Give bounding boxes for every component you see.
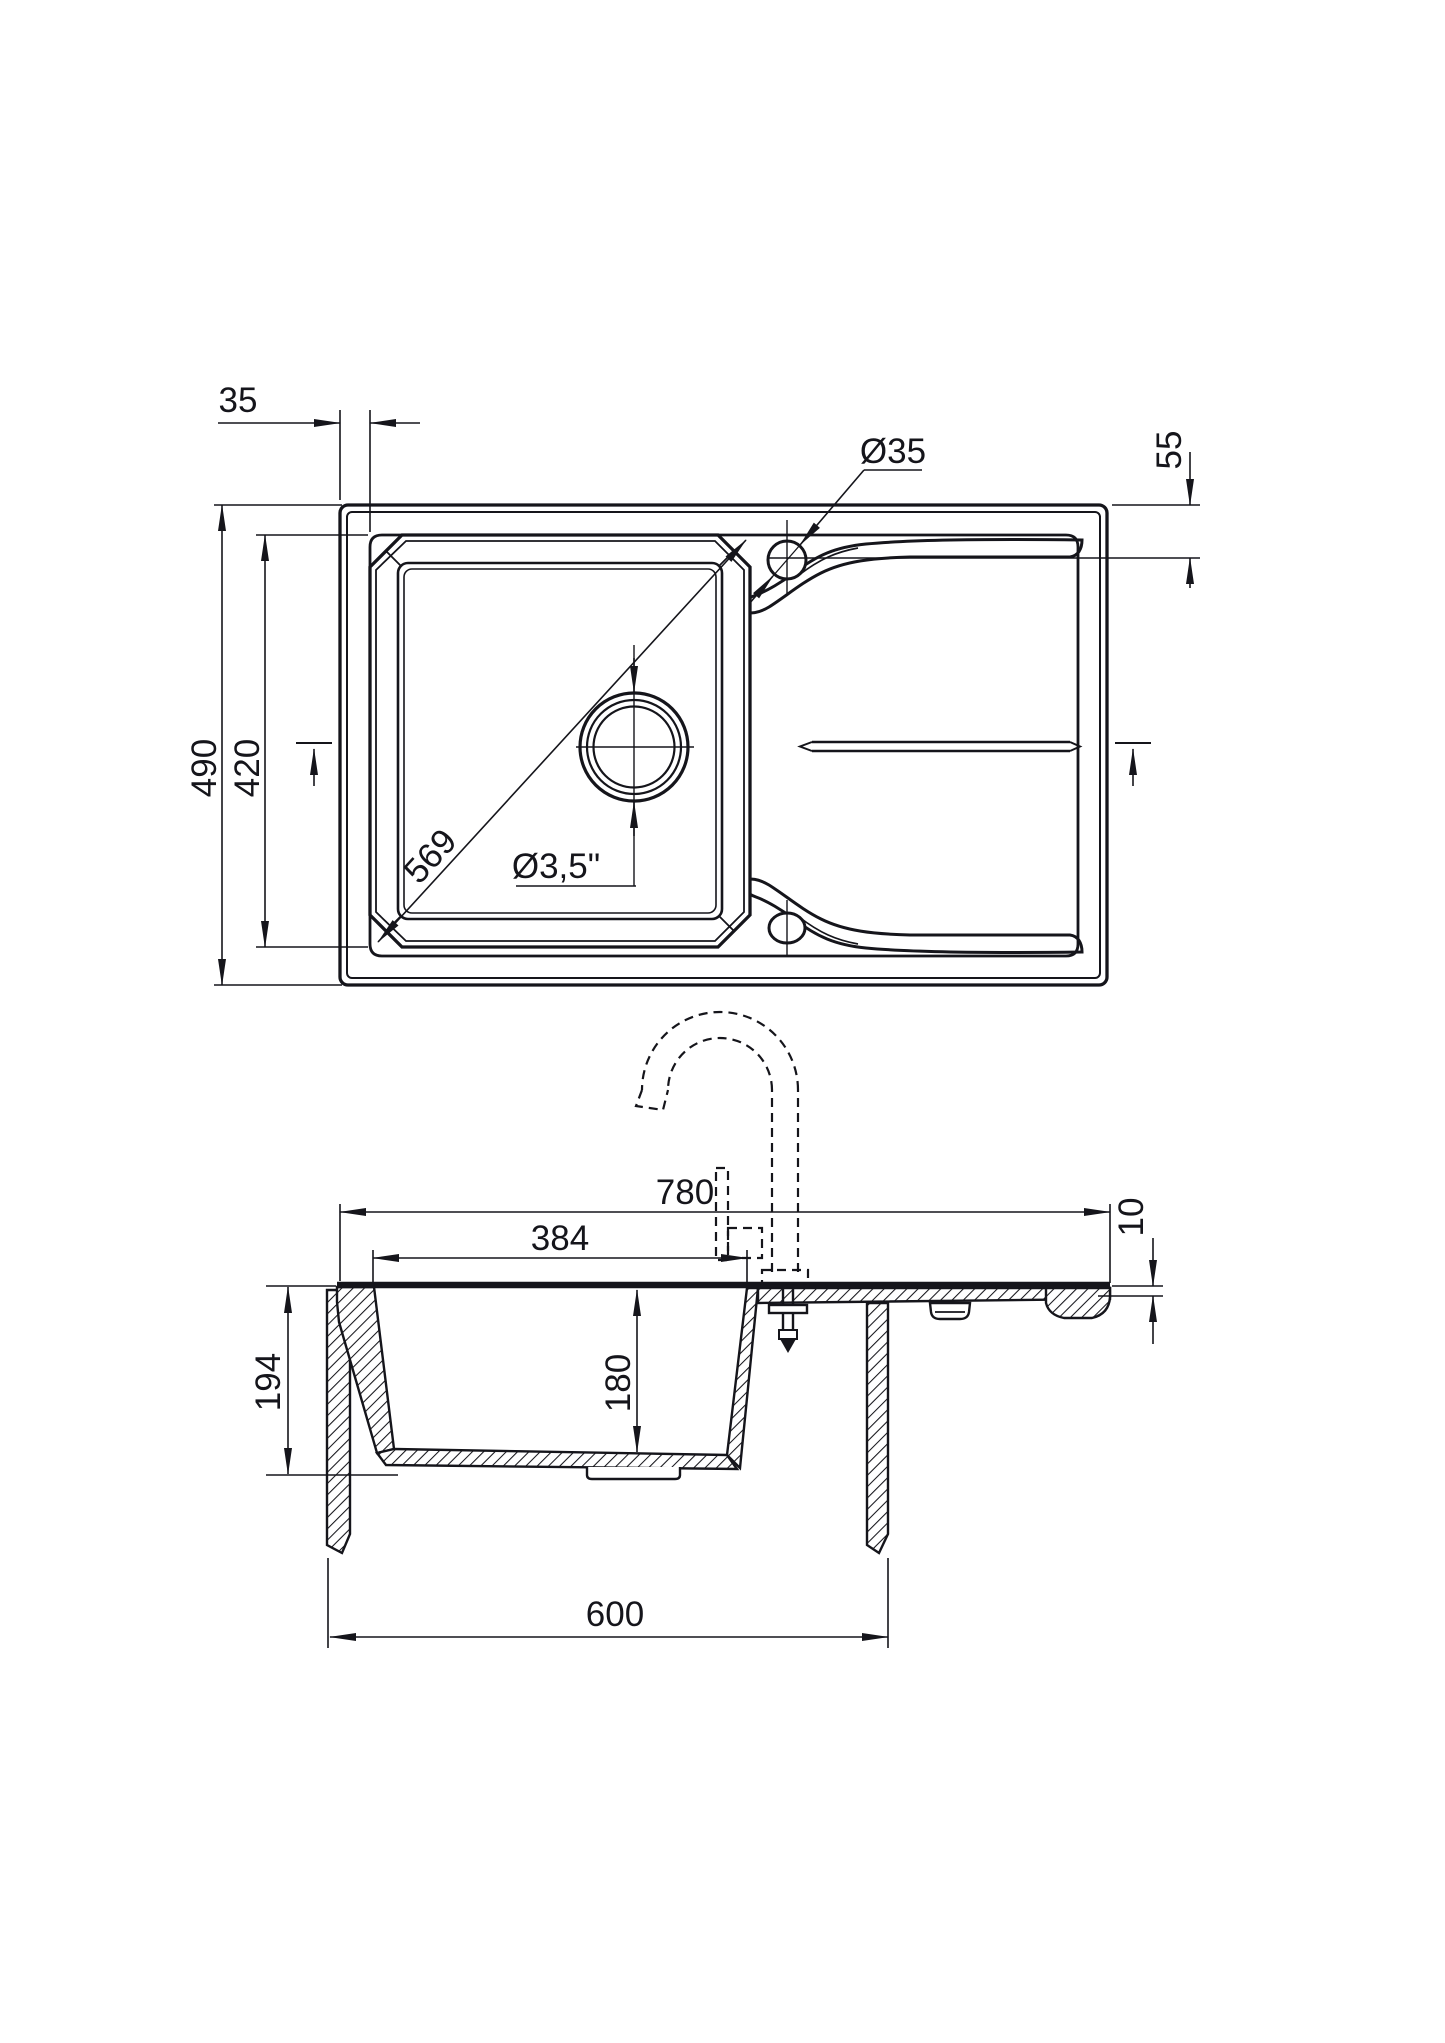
centerline-mark-right [1115,743,1151,786]
dim-rim-offset-label: 35 [219,381,258,420]
dim-bowl-width-label: 384 [531,1219,589,1258]
cabinet-wall-right [867,1303,888,1553]
dim-bowl-outer-depth-label: 194 [249,1353,288,1411]
section-view: 780 384 10 194 180 6 [249,1012,1163,1648]
faucet-handle [716,1168,728,1260]
drain-cup [930,1303,970,1319]
dim-rim-thickness-label: 10 [1112,1198,1151,1237]
dim-bowl-inner-depth: 180 [599,1290,638,1452]
dim-bowl-inner-depth-label: 180 [599,1354,638,1412]
dim-overall-depth-label: 490 [185,739,224,797]
bowl-bottom [377,1449,737,1469]
centerline-mark-left [296,743,332,786]
technical-drawing-page: 35 490 420 55 Ø35 [0,0,1445,2043]
deck-edge-right [1046,1288,1110,1318]
bowl-wall-right [727,1288,758,1468]
dim-drain-label: Ø3,5" [512,847,600,886]
dim-tap-hole-label: Ø35 [860,432,926,471]
dim-overall-width-label: 780 [656,1173,714,1212]
drain-boss [587,1467,680,1479]
sink-section-body [337,1287,1110,1479]
dim-bowl-length-label: 420 [228,739,267,797]
sink-drawing-svg: 35 490 420 55 Ø35 [0,0,1445,2043]
dim-hole-from-edge-label: 55 [1150,431,1189,470]
dim-cabinet-width-label: 600 [586,1595,644,1634]
plan-view: 35 490 420 55 Ø35 [185,381,1200,985]
dim-overall-width: 780 [340,1173,1110,1283]
faucet-outline [636,1012,808,1286]
dim-bowl-width: 384 [373,1219,747,1284]
dim-rim-thickness: 10 [1098,1198,1163,1344]
dim-cabinet-width: 600 [328,1558,888,1648]
